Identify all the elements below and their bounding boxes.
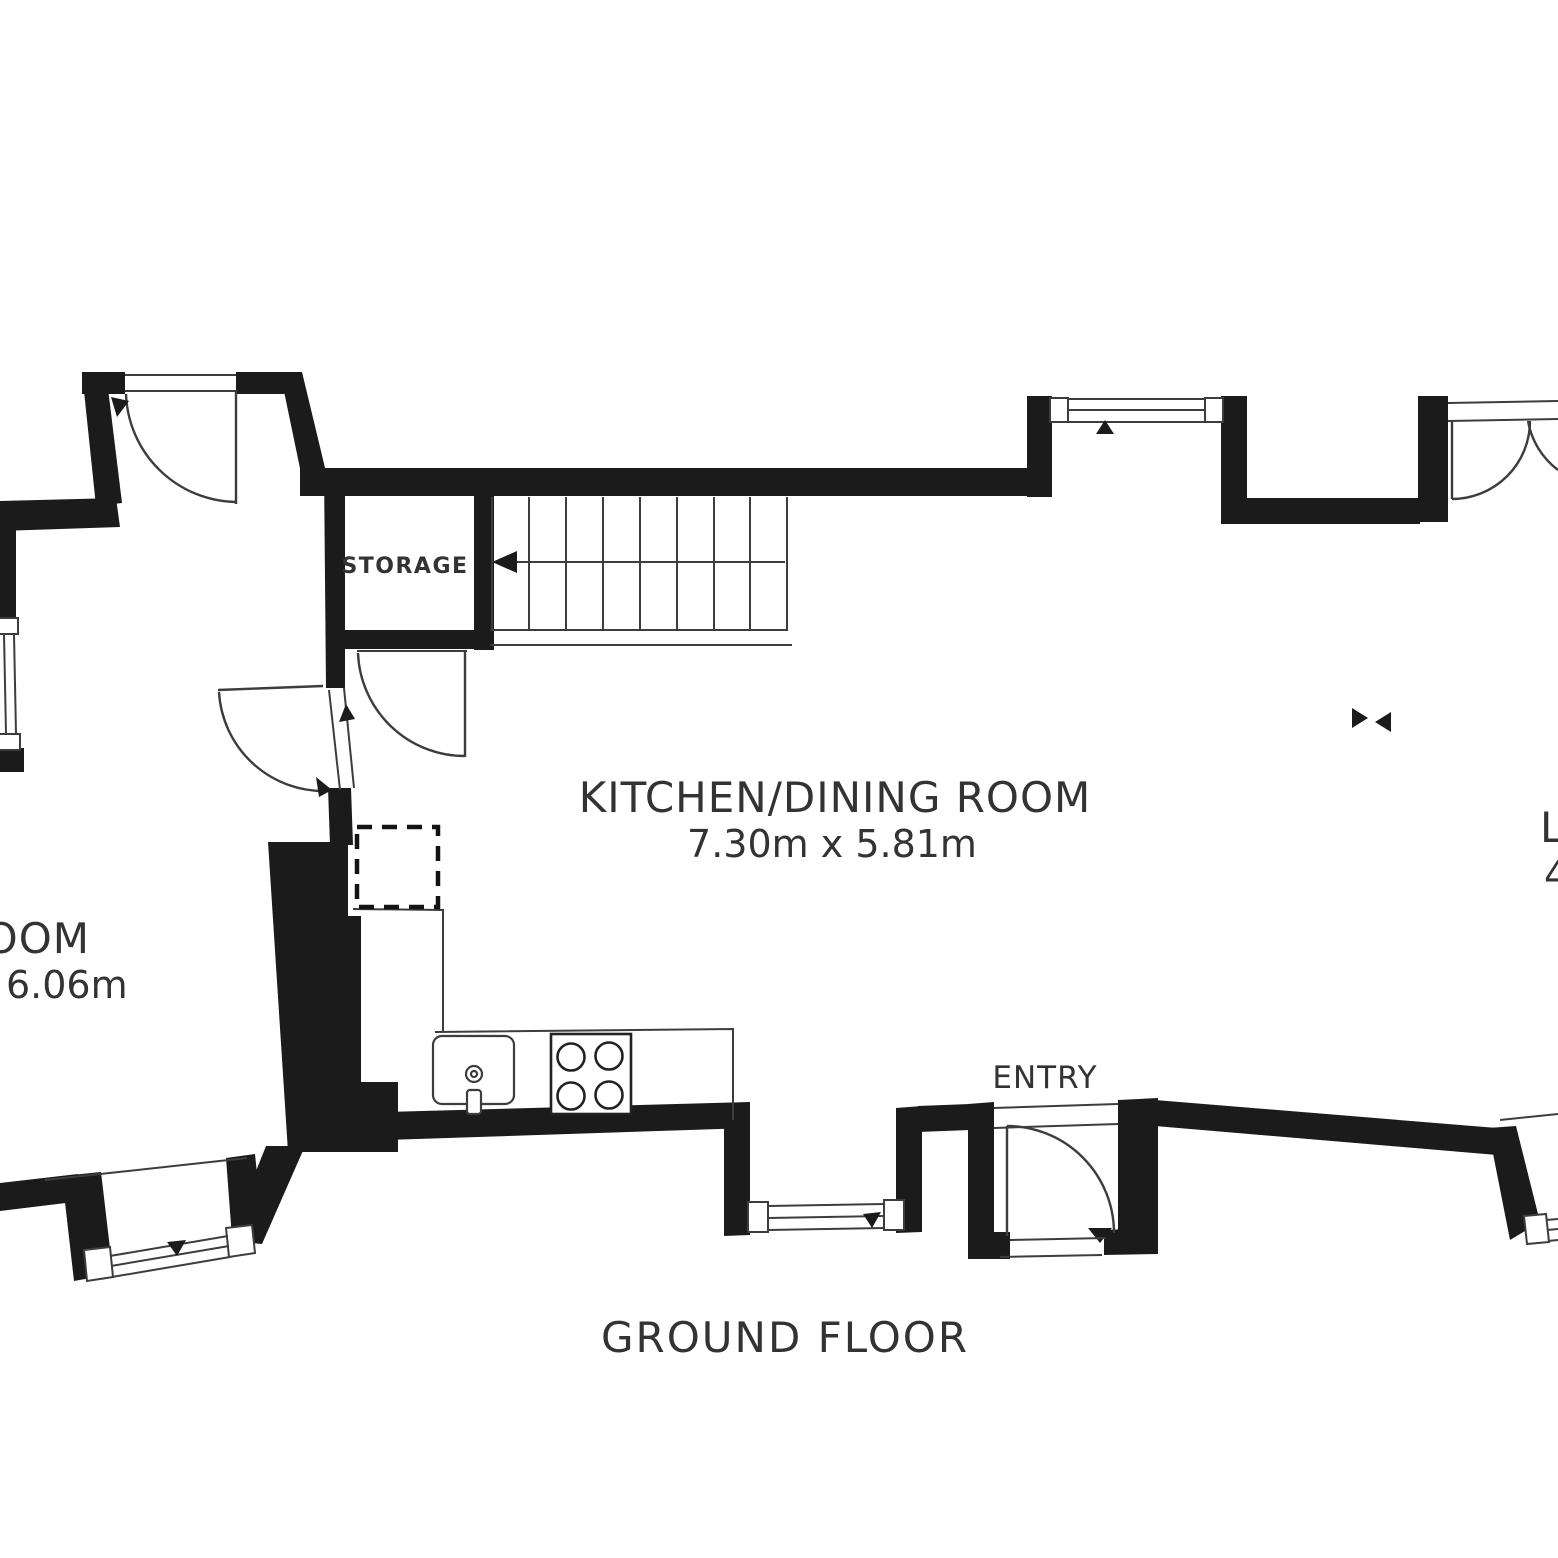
bay-interior-line (1500, 1114, 1558, 1120)
door-leaf (218, 686, 323, 690)
door-swing-arc (1007, 1126, 1114, 1233)
window-glazing (4, 634, 6, 734)
door-opening-line (1448, 419, 1558, 421)
door-swing-arc (1528, 421, 1558, 470)
wall (1245, 498, 1420, 524)
right-room-dimensions-partial: 4 (1544, 853, 1558, 897)
window-glazing (768, 1228, 884, 1230)
stairs-direction-arrow (492, 551, 517, 573)
hob-burner (558, 1083, 585, 1110)
window-glazing (111, 1246, 229, 1266)
counter-outline (353, 909, 733, 1120)
opening-triangle-left (1375, 712, 1391, 732)
window-glazing (1546, 1219, 1558, 1220)
right-room-label-partial: L (1540, 803, 1558, 852)
window-glazing (1547, 1229, 1558, 1230)
window-end-block (1524, 1214, 1549, 1244)
threshold-line (1010, 1238, 1106, 1240)
window-end-block (1205, 398, 1223, 422)
wall (0, 498, 120, 531)
window-glazing (112, 1257, 230, 1277)
window-end-block (0, 618, 18, 634)
door-jamb-line (329, 690, 340, 790)
hob-burner (596, 1082, 623, 1109)
opening-triangle-right (1352, 708, 1368, 728)
storage-wall-bottom (338, 630, 477, 649)
door-opening-line (1448, 401, 1558, 403)
kitchen-dining-dimensions: 7.30m x 5.81m (687, 822, 977, 866)
window-opening-triangle (863, 1212, 881, 1228)
wall (968, 1232, 1010, 1259)
wall (1118, 1098, 1158, 1236)
threshold-line (1000, 1255, 1102, 1257)
floor-title: GROUND FLOOR (601, 1313, 969, 1362)
wall (0, 748, 24, 772)
window-end-block (0, 734, 20, 750)
storage-label: STORAGE (341, 554, 468, 579)
window-end-block (226, 1225, 255, 1257)
wall (724, 1112, 750, 1236)
sink-tap (467, 1090, 481, 1114)
storage-wall-left (324, 470, 345, 688)
hob-burner (558, 1044, 585, 1071)
left-room-label-partial: OOM (0, 914, 90, 963)
window-end-block (884, 1200, 904, 1230)
appliance-dashed-outline (357, 827, 438, 907)
window-glazing (1548, 1240, 1558, 1241)
window-end-block (84, 1247, 113, 1281)
wall (918, 1104, 970, 1132)
door-opening-line (994, 1104, 1118, 1108)
door-swing-arc (126, 394, 236, 502)
wall (1155, 1100, 1497, 1155)
interior-walls (324, 470, 494, 845)
wall (1221, 396, 1247, 524)
hob-burner (596, 1043, 623, 1070)
window-glazing (768, 1204, 884, 1206)
wall (1418, 396, 1448, 522)
floor-plan-page: STORAGE KITCHEN/DINING ROOM 7.30m x 5.81… (0, 0, 1558, 1558)
wall (1027, 396, 1052, 497)
window-end-block (748, 1202, 768, 1232)
kitchen-dining-label: KITCHEN/DINING ROOM (579, 773, 1092, 822)
window-glazing (110, 1236, 228, 1256)
left-room-dimensions-partial: 6.06m (6, 963, 128, 1007)
door-swing-arc (219, 692, 327, 791)
door-jamb-line (344, 688, 354, 788)
door-swing-arc (358, 653, 465, 756)
floor-plan-drawing: STORAGE KITCHEN/DINING ROOM 7.30m x 5.81… (0, 0, 1558, 1558)
wall (300, 468, 1032, 496)
sink-drain-center (471, 1071, 477, 1077)
wall (1104, 1228, 1158, 1255)
window-end-block (1050, 398, 1068, 422)
bay-interior-line (45, 1158, 247, 1180)
kitchen-fixtures (353, 827, 733, 1120)
entry-label: ENTRY (992, 1060, 1097, 1096)
wall (0, 520, 16, 630)
door-swing-arrow (339, 704, 355, 722)
door-swing-arc (1452, 421, 1530, 499)
chimney-breast (268, 842, 398, 1152)
wall (280, 372, 326, 478)
stairs (490, 497, 792, 645)
window-glazing (14, 634, 16, 734)
divider-wall (328, 788, 353, 845)
opening-direction-triangles (1352, 708, 1391, 732)
